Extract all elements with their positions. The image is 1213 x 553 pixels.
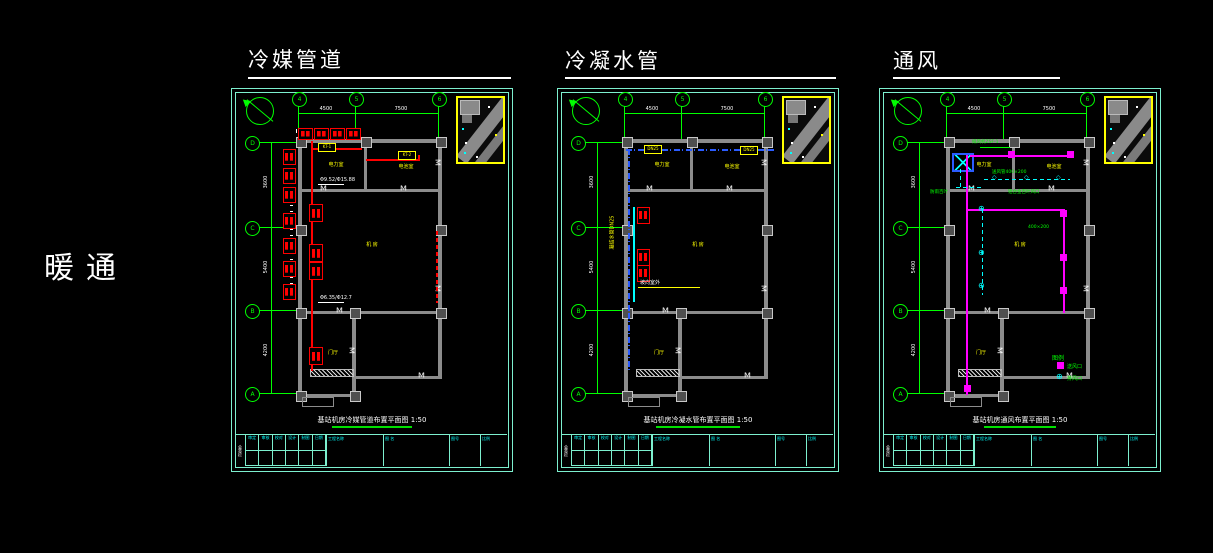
titleblock-fields: 审定 审核 校对 设计 制图 日期	[246, 435, 327, 466]
grid-bubble: D	[893, 136, 908, 151]
room-label: 门厅	[316, 349, 350, 356]
grid-line	[764, 105, 765, 139]
grid-line	[597, 142, 598, 394]
refrigerant-pipe	[418, 155, 420, 161]
dim-text: 4500	[634, 106, 670, 112]
condensate-pipe	[768, 149, 776, 151]
column	[350, 308, 361, 319]
equipment-tag: KT-2	[398, 151, 416, 160]
door-icon: M	[744, 373, 751, 379]
outdoor-unit	[314, 128, 329, 140]
grid-bubble: 5	[349, 92, 364, 107]
titleblock-field: 审核	[259, 435, 272, 451]
exhaust-duct-dashed	[956, 187, 982, 188]
vent-label: 防雨百叶	[930, 189, 948, 195]
grid-bubble: 4	[618, 92, 633, 107]
condensate-riser	[633, 207, 635, 302]
grid-bubble: 6	[758, 92, 773, 107]
grid-line	[258, 310, 298, 311]
column	[998, 308, 1009, 319]
titleblock-sign: 会签栏	[561, 435, 572, 466]
titleblock-sign: 会签栏	[235, 435, 246, 466]
grid-line	[298, 113, 439, 114]
grid-bubble: D	[571, 136, 586, 151]
caption-underline	[332, 426, 412, 428]
titleblock-sign: 会签栏	[883, 435, 894, 466]
titleblock-scale: 比例	[807, 435, 833, 466]
door-icon: M	[418, 373, 425, 379]
outdoor-unit	[283, 149, 296, 165]
porch	[302, 397, 334, 407]
grid-line	[624, 113, 765, 114]
grid-bubble: B	[571, 304, 586, 319]
pipe-label: Φ6.35/Φ12.7	[320, 295, 352, 301]
legend-supply-icon	[1057, 362, 1064, 369]
room-label: 电力室	[314, 161, 358, 168]
drawing-caption: 基站机房冷媒管道布置平面图 1:50	[302, 415, 442, 425]
outdoor-unit	[298, 128, 313, 140]
titleblock-field: 制图	[299, 435, 312, 451]
indoor-unit	[637, 249, 650, 266]
dim-text: 3600	[589, 172, 595, 192]
titleblock-field: 设计	[934, 435, 947, 451]
duct-fitting: ◇	[992, 175, 997, 181]
titleblock-field: 审核	[585, 435, 598, 451]
supply-outlet	[1008, 151, 1015, 158]
refrigerant-pipe-dashed	[436, 231, 438, 303]
wall	[298, 311, 442, 314]
sheet-condensate: 4 5 6 4500 7500 D C B A 3600 5400 4200 M…	[557, 88, 839, 472]
room-label: 电池室	[382, 163, 430, 170]
column	[762, 308, 773, 319]
porch	[628, 397, 660, 407]
sheet3-title-underline	[893, 77, 1060, 79]
titleblock-field: 校对	[921, 435, 934, 451]
leader-line	[318, 184, 344, 185]
condensate-pipe	[628, 149, 630, 311]
wall	[1086, 311, 1090, 379]
room-label: 电力室	[962, 161, 1006, 168]
exhaust-outlet: ⊕	[978, 249, 985, 257]
pipe-tag: DN25	[740, 146, 758, 155]
grid-line	[584, 227, 624, 228]
door-icon: M	[400, 186, 407, 192]
dim-text: 3600	[263, 172, 269, 192]
titleblock-project: 工程名称	[975, 435, 1032, 466]
door-icon: M	[760, 159, 766, 166]
indoor-unit	[309, 244, 323, 262]
grid-bubble: B	[893, 304, 908, 319]
key-plan	[456, 96, 505, 164]
drawing-caption: 基站机房冷凝水管布置平面图 1:50	[628, 415, 768, 425]
key-plan	[1104, 96, 1153, 164]
grid-bubble: D	[245, 136, 260, 151]
column	[762, 225, 773, 236]
drawing-caption: 基站机房通风布置平面图 1:50	[950, 415, 1090, 425]
supply-outlet	[1060, 254, 1067, 261]
dim-text: 4200	[911, 340, 917, 360]
column	[622, 137, 633, 148]
outdoor-unit	[283, 261, 296, 277]
grid-bubble: C	[893, 221, 908, 236]
column	[944, 137, 955, 148]
titleblock: 会签栏 审定 审核 校对 设计 制图 日期 工程名称 图 名 图号 比例	[235, 434, 507, 466]
pipe-tag: DN25	[644, 145, 662, 154]
grid-line	[919, 142, 920, 394]
column	[998, 391, 1009, 402]
vent-label: 送风管400×200	[992, 169, 1026, 175]
grid-line	[584, 393, 624, 394]
door-icon: M	[760, 285, 766, 292]
titleblock-field: 日期	[313, 435, 326, 451]
supply-outlet	[1060, 210, 1067, 217]
indoor-unit	[309, 204, 323, 222]
pipe-label: 凝结水管DN25	[609, 213, 616, 253]
titleblock: 会签栏 审定 审核 校对 设计 制图 日期 工程名称 图 名 图号 比例	[883, 434, 1155, 466]
grid-line	[584, 310, 624, 311]
column	[687, 137, 698, 148]
sheet-ventilation: 4 5 6 4500 7500 D C B A 3600 5400 4200 M…	[879, 88, 1161, 472]
titleblock-fields: 审定 审核 校对 设计 制图 日期	[894, 435, 975, 466]
north-arrow-icon	[246, 97, 274, 125]
titleblock-scale: 比例	[1129, 435, 1155, 466]
equipment-tag: KT-1	[318, 143, 336, 152]
grid-line	[258, 393, 298, 394]
louver	[958, 369, 1002, 377]
duct-fitting: ◇	[1024, 175, 1029, 181]
room-label: 门厅	[964, 349, 998, 356]
titleblock-no: 图号	[776, 435, 807, 466]
legend-supply-label: 送风口	[1067, 363, 1082, 370]
supply-duct	[966, 155, 968, 395]
titleblock-field: 校对	[273, 435, 286, 451]
grid-bubble: A	[245, 387, 260, 402]
duct-fitting: ◇	[1056, 175, 1061, 181]
grid-line	[584, 142, 624, 143]
outdoor-unit	[283, 238, 296, 254]
room-label: 机 房	[350, 241, 394, 248]
dim-text: 4500	[956, 106, 992, 112]
room-label: 机 房	[998, 241, 1042, 248]
sheet-refrigerant: 4 5 6 4500 7500 D C B A 3600 5400 4200 M…	[231, 88, 513, 472]
column	[350, 391, 361, 402]
dim-text: 5400	[589, 257, 595, 277]
sheet1-title-underline	[248, 77, 511, 79]
column	[1009, 137, 1020, 148]
door-icon: M	[434, 159, 440, 166]
supply-outlet	[1060, 287, 1067, 294]
grid-bubble: 6	[1080, 92, 1095, 107]
titleblock-scale: 比例	[481, 435, 507, 466]
louver	[310, 369, 354, 377]
titleblock-drawing: 图 名	[1032, 435, 1098, 466]
titleblock-field: 制图	[625, 435, 638, 451]
grid-bubble: C	[245, 221, 260, 236]
column	[676, 308, 687, 319]
legend-exhaust-label: 排风口	[1067, 375, 1082, 382]
outdoor-unit	[330, 128, 345, 140]
caption-underline	[984, 426, 1056, 428]
grid-line	[906, 393, 946, 394]
grid-line	[258, 142, 298, 143]
wall	[946, 311, 950, 397]
room-label: 电力室	[640, 161, 684, 168]
dim-text: 4200	[589, 340, 595, 360]
pipe-label: Φ9.52/Φ15.88	[320, 177, 355, 183]
column	[1084, 137, 1095, 148]
column	[1084, 225, 1095, 236]
door-icon: M	[726, 186, 733, 192]
grid-bubble: A	[893, 387, 908, 402]
grid-line	[1003, 105, 1004, 139]
door-icon: M	[662, 308, 669, 314]
wall	[680, 376, 768, 379]
outdoor-unit	[283, 168, 296, 184]
door-icon: M	[1048, 186, 1055, 192]
dim-text: 7500	[1028, 106, 1070, 112]
room-label: 电池室	[1030, 163, 1078, 170]
column	[762, 137, 773, 148]
supply-outlet	[964, 385, 971, 392]
door-icon: M	[320, 186, 327, 192]
grid-line	[906, 142, 946, 143]
column	[361, 137, 372, 148]
titleblock-project: 工程名称	[327, 435, 384, 466]
grid-line	[681, 105, 682, 139]
sheet3-title: 通风	[893, 45, 941, 75]
titleblock-field: 制图	[947, 435, 960, 451]
titleblock-field: 设计	[286, 435, 299, 451]
titleblock-field: 校对	[599, 435, 612, 451]
door-icon: M	[1082, 285, 1088, 292]
north-arrow-icon	[572, 97, 600, 125]
grid-bubble: 4	[940, 92, 955, 107]
titleblock-field: 审核	[907, 435, 920, 451]
leader-line	[318, 302, 344, 303]
wall	[298, 311, 302, 397]
indoor-unit	[637, 207, 650, 224]
wall	[624, 311, 768, 314]
titleblock-drawing: 图 名	[384, 435, 450, 466]
grid-bubble: C	[571, 221, 586, 236]
titleblock-no: 图号	[450, 435, 481, 466]
outdoor-unit	[283, 213, 296, 229]
outdoor-unit	[283, 284, 296, 300]
door-icon: M	[646, 186, 653, 192]
sheet2-title: 冷凝水管	[565, 45, 661, 75]
wall	[438, 311, 442, 379]
grid-bubble: 4	[292, 92, 307, 107]
grid-line	[624, 105, 625, 139]
column	[296, 225, 307, 236]
titleblock-no: 图号	[1098, 435, 1129, 466]
exhaust-outlet: ⊕	[978, 282, 985, 290]
column	[1084, 308, 1095, 319]
outdoor-unit	[346, 128, 361, 140]
indoor-unit	[309, 262, 323, 280]
discipline-label: 暖通	[44, 243, 128, 287]
supply-duct	[1063, 209, 1065, 313]
door-icon: M	[984, 308, 991, 314]
dim-text: 5400	[911, 257, 917, 277]
grid-line	[438, 105, 439, 139]
wall	[764, 311, 768, 379]
grid-bubble: 5	[997, 92, 1012, 107]
grid-line	[946, 113, 1087, 114]
supply-outlet	[1067, 151, 1074, 158]
key-plan	[782, 96, 831, 164]
grid-line	[906, 310, 946, 311]
wall	[354, 376, 442, 379]
titleblock-field: 设计	[612, 435, 625, 451]
column	[296, 308, 307, 319]
sheet1-title: 冷媒管道	[248, 44, 344, 74]
titleblock-field: 审定	[572, 435, 585, 451]
legend-exhaust-icon: ⊕	[1056, 373, 1063, 381]
titleblock-field: 日期	[961, 435, 974, 451]
exhaust-outlet: ⊕	[978, 205, 985, 213]
dim-text: 7500	[380, 106, 422, 112]
titleblock-field: 审定	[246, 435, 259, 451]
titleblock-fields: 审定 审核 校对 设计 制图 日期	[572, 435, 653, 466]
condensate-pipe	[628, 313, 630, 371]
grid-bubble: B	[245, 304, 260, 319]
room-label: 机 房	[676, 241, 720, 248]
leader-line	[638, 287, 700, 288]
column	[944, 308, 955, 319]
dim-text: 3600	[911, 172, 917, 192]
door-icon: M	[1082, 159, 1088, 166]
column	[436, 137, 447, 148]
column	[944, 225, 955, 236]
grid-line	[1086, 105, 1087, 139]
north-arrow-icon	[894, 97, 922, 125]
exhaust-duct-dashed	[960, 169, 961, 187]
dim-text: 4500	[308, 106, 344, 112]
dim-text: 7500	[706, 106, 748, 112]
titleblock: 会签栏 审定 审核 校对 设计 制图 日期 工程名称 图 名 图号 比例	[561, 434, 833, 466]
vent-label: 铝合金百叶风口	[1008, 189, 1040, 195]
dim-text: 4200	[263, 340, 269, 360]
sheet2-title-underline	[565, 77, 836, 79]
caption-underline	[656, 426, 740, 428]
pipe-label: 坡向室外	[640, 279, 660, 286]
titleblock-field: 审定	[894, 435, 907, 451]
dim-text: 5400	[263, 257, 269, 277]
legend-title: 图例	[1052, 353, 1064, 362]
leader-line	[980, 147, 1010, 148]
supply-duct	[970, 155, 1070, 157]
titleblock-drawing: 图 名	[710, 435, 776, 466]
grid-bubble: A	[571, 387, 586, 402]
grid-line	[946, 105, 947, 139]
column	[676, 391, 687, 402]
column	[436, 308, 447, 319]
vent-label: 400×200	[1028, 225, 1049, 230]
titleblock-project: 工程名称	[653, 435, 710, 466]
grid-line	[271, 142, 272, 394]
outdoor-unit	[283, 187, 296, 203]
door-icon: M	[336, 308, 343, 314]
vent-label: 排风机ZSF-1	[972, 139, 999, 145]
louver	[636, 369, 680, 377]
grid-bubble: 5	[675, 92, 690, 107]
grid-line	[906, 227, 946, 228]
titleblock-field: 日期	[639, 435, 652, 451]
room-label: 门厅	[642, 349, 676, 356]
room-label: 电池室	[708, 163, 756, 170]
grid-bubble: 6	[432, 92, 447, 107]
porch	[950, 397, 982, 407]
